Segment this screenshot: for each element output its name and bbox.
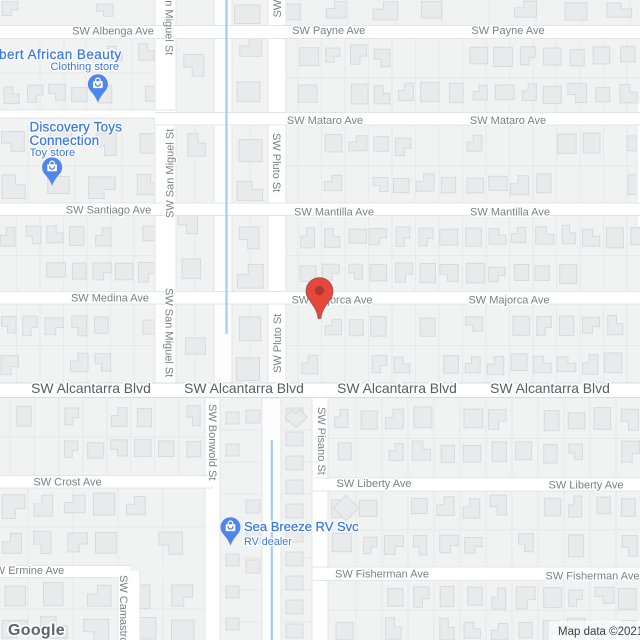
svg-text:SW Fisherman Ave: SW Fisherman Ave	[335, 569, 429, 581]
svg-text:SW Liberty Ave: SW Liberty Ave	[549, 480, 624, 492]
svg-text:SW Santiago Ave: SW Santiago Ave	[66, 205, 151, 217]
svg-text:SW San Miguel St: SW San Miguel St	[163, 0, 175, 55]
svg-text:SW Fisherman Ave: SW Fisherman Ave	[546, 571, 640, 583]
svg-text:bert African Beauty: bert African Beauty	[0, 47, 122, 62]
svg-text:Toy store: Toy store	[30, 147, 76, 159]
svg-text:SW Albenga Ave: SW Albenga Ave	[72, 26, 154, 38]
svg-text:SW Pluto St: SW Pluto St	[272, 0, 284, 18]
svg-text:Map data ©2021: Map data ©2021	[558, 626, 640, 638]
svg-text:SW Pluto St: SW Pluto St	[270, 133, 282, 192]
svg-text:SW Alcantarra Blvd: SW Alcantarra Blvd	[31, 380, 151, 396]
svg-text:Sea Breeze RV Svc: Sea Breeze RV Svc	[244, 519, 359, 534]
svg-text:SW Payne Ave: SW Payne Ave	[471, 25, 544, 37]
svg-text:SW Majorca Ave: SW Majorca Ave	[468, 295, 549, 307]
svg-text:Clothing store: Clothing store	[51, 61, 119, 73]
svg-text:RV dealer: RV dealer	[244, 536, 292, 548]
svg-text:SW Alcantarra Blvd: SW Alcantarra Blvd	[337, 380, 457, 396]
svg-text:SW San Miguel St: SW San Miguel St	[163, 288, 175, 377]
svg-text:Connection: Connection	[30, 133, 100, 148]
svg-text:SW Camastro St: SW Camastro St	[117, 575, 129, 640]
svg-text:SW Alcantarra Blvd: SW Alcantarra Blvd	[184, 380, 304, 396]
svg-text:SW Bonwold St: SW Bonwold St	[206, 404, 218, 480]
svg-text:SW San Miguel St: SW San Miguel St	[165, 129, 177, 218]
svg-text:SW Payne Ave: SW Payne Ave	[292, 25, 365, 37]
svg-text:SW Mantilla Ave: SW Mantilla Ave	[294, 207, 374, 219]
svg-text:Google: Google	[8, 622, 65, 639]
svg-text:SW Liberty Ave: SW Liberty Ave	[337, 478, 412, 490]
svg-text:SW Crost Ave: SW Crost Ave	[33, 477, 101, 489]
svg-text:SW Alcantarra Blvd: SW Alcantarra Blvd	[490, 380, 610, 396]
svg-text:SW Pisano St: SW Pisano St	[315, 407, 327, 475]
svg-text:SW Mataro Ave: SW Mataro Ave	[470, 115, 546, 127]
svg-text:SW Mataro Ave: SW Mataro Ave	[287, 115, 363, 127]
svg-text:SW Mantilla Ave: SW Mantilla Ave	[470, 207, 550, 219]
svg-text:W Ermine Ave: W Ermine Ave	[0, 565, 64, 577]
svg-text:SW Pluto St: SW Pluto St	[272, 314, 284, 373]
svg-text:SW Medina Ave: SW Medina Ave	[71, 293, 149, 305]
